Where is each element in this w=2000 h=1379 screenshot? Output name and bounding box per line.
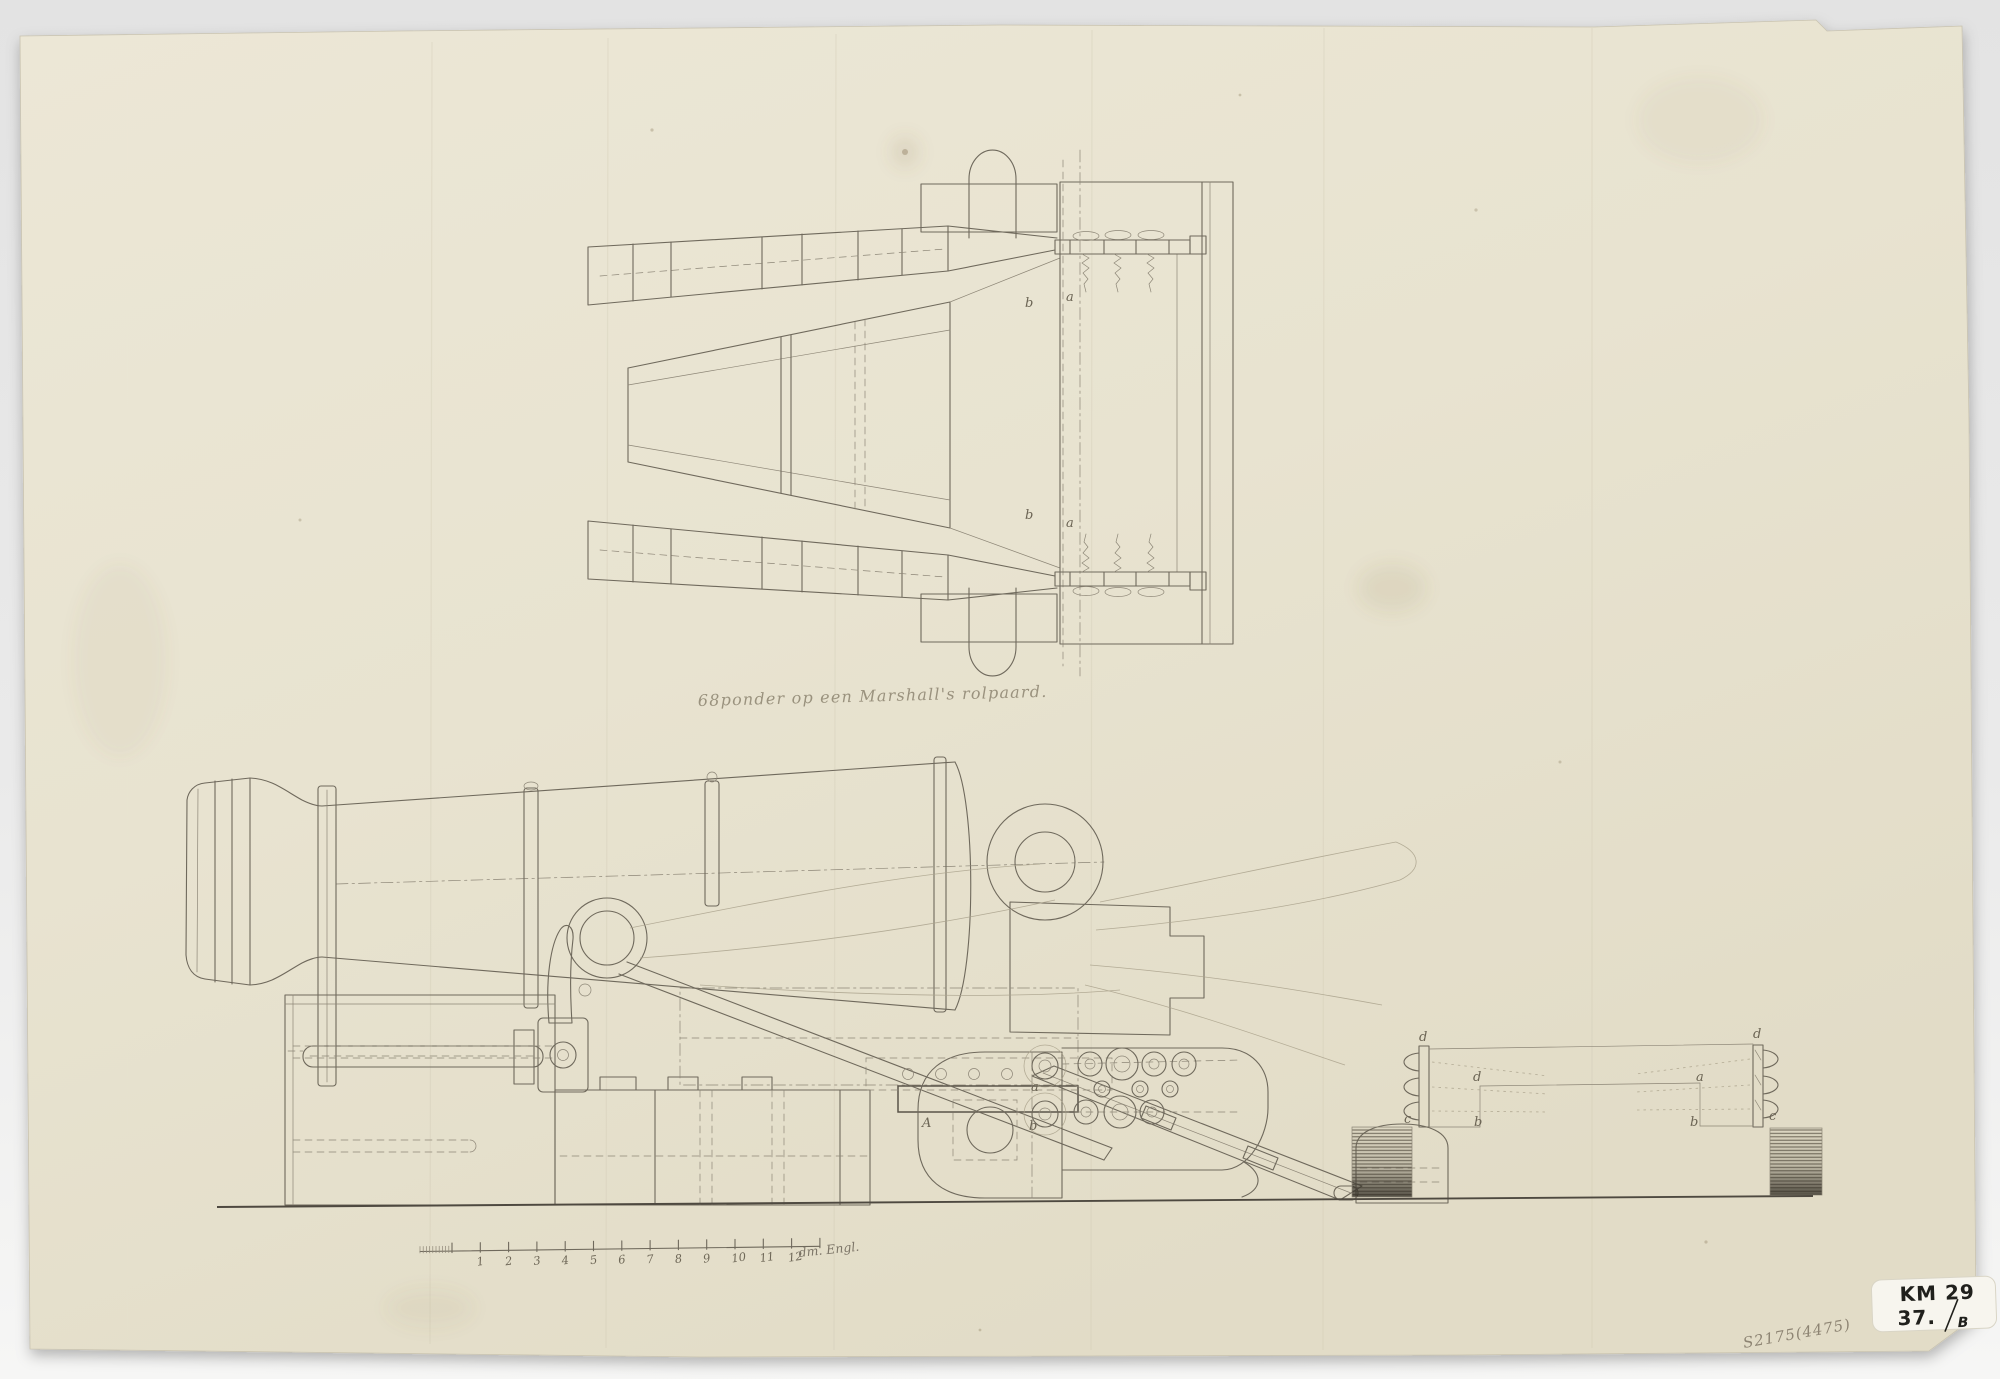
annotation-letter: d [1473, 1070, 1481, 1085]
annotation-letter: d [1753, 1027, 1761, 1042]
annotation-letter: a [1031, 1080, 1039, 1095]
annotation-letter: a [1696, 1070, 1704, 1085]
annotation-letter: b [1690, 1115, 1698, 1130]
annotation-letter: b [1025, 296, 1033, 311]
annotation-letter: b [1029, 1119, 1037, 1134]
annotation-letter: c [1404, 1112, 1412, 1127]
annotation-letter: b [1474, 1115, 1482, 1130]
shelfmark-sticker: KM 29 37. B [1871, 1276, 1997, 1334]
annotation-letter: d [1419, 1030, 1427, 1045]
sticker-shelfmark-suffix: B [1957, 1315, 1968, 1331]
sticker-shelfmark-line2: 37. [1897, 1305, 1936, 1330]
scale-number: 10 [730, 1250, 746, 1266]
hatched-block-left [1352, 1127, 1412, 1197]
hatched-block-right [1770, 1128, 1822, 1195]
scanned-drawing-stage: 68ponder op een Marshall's rolpaard. [0, 0, 2000, 1379]
annotation-letter: c [1769, 1109, 1777, 1124]
sticker-shelfmark-line1: KM 29 [1899, 1280, 1975, 1307]
annotation-letter: A [921, 1116, 931, 1131]
drawing-canvas: 68ponder op een Marshall's rolpaard. [0, 0, 2000, 1379]
annotation-letter: a [1066, 516, 1074, 531]
scale-number: 11 [759, 1249, 775, 1265]
annotation-letter: a [1066, 290, 1074, 305]
annotation-letter: b [1025, 508, 1033, 523]
